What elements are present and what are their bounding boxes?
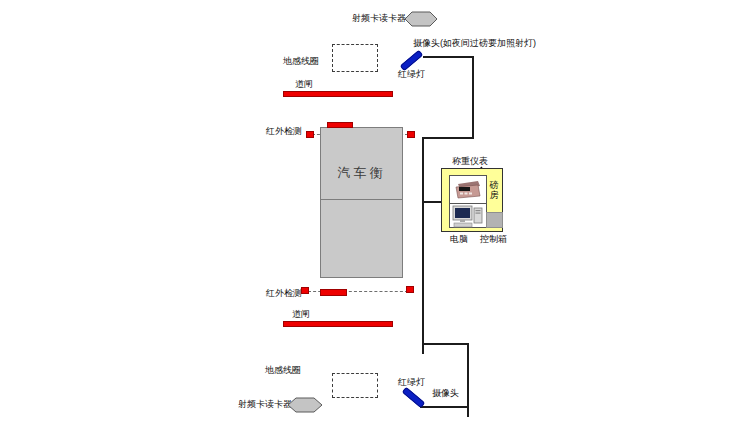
rfid-reader-bottom-label: 射频卡读卡器 (238, 399, 292, 409)
barrier-bottom-label: 道闸 (292, 309, 310, 319)
infrared-top-sensor-right (407, 131, 415, 138)
ground-coil-top-area (332, 44, 378, 72)
infrared-bottom-sensor-right (406, 286, 414, 293)
weigh-house-inner-divider (450, 203, 486, 204)
infrared-bottom-label: 红外检测 (266, 288, 302, 298)
computer-label: 电脑 (450, 234, 468, 244)
barrier-bottom-bar (283, 321, 393, 327)
weigh-house-inner-room (449, 175, 487, 228)
traffic-light-bottom-label: 红绿灯 (398, 377, 425, 387)
camera-bottom-label: 摄像头 (432, 388, 459, 398)
weigh-house-box: 磅 房 (441, 168, 503, 232)
ground-coil-bottom-label: 地感线圈 (265, 365, 301, 375)
infrared-top-sensor-left (306, 131, 314, 138)
rfid-reader-bottom-icon (287, 397, 323, 413)
ground-coil-bottom-area (332, 373, 378, 398)
infrared-bottom-sensor-left (301, 287, 309, 294)
cable-mid-horizontal (422, 137, 474, 139)
weigh-house-label: 磅 房 (488, 180, 500, 200)
ground-coil-top-label: 地感线圈 (283, 56, 319, 66)
cable-main-vertical (422, 137, 424, 354)
weigh-house-label-char2: 房 (488, 190, 500, 200)
infrared-top-bar (327, 122, 353, 128)
barrier-top-label: 道闸 (295, 79, 313, 89)
weighing-indicator-image (454, 179, 482, 200)
control-box-image (486, 212, 503, 228)
control-box-label: 控制箱 (480, 234, 507, 244)
cable-right-vertical-upper (472, 56, 474, 139)
infrared-bottom-bar (320, 289, 347, 296)
truck-scale-label: 汽车衡 (321, 164, 402, 182)
weigh-house-label-char1: 磅 (488, 180, 500, 190)
truck-scale-divider (320, 199, 403, 200)
rfid-reader-top-label: 射频卡读卡器 (352, 13, 406, 23)
computer-image (452, 205, 484, 228)
traffic-light-bottom-icon (402, 387, 426, 408)
rfid-reader-top-icon (404, 11, 438, 27)
infrared-top-label: 红外检测 (266, 126, 302, 136)
truck-scale-system-diagram: 射频卡读卡器 摄像头(如夜间过磅要加照射灯) 地感线圈 红绿灯 道闸 红外检测 … (0, 0, 746, 428)
cable-camera-bottom-horizontal (420, 406, 467, 408)
cable-bottom-vertical (467, 343, 469, 417)
barrier-top-bar (283, 91, 393, 97)
traffic-light-top-icon (400, 50, 424, 71)
camera-top-label: 摄像头(如夜间过磅要加照射灯) (413, 38, 536, 48)
traffic-light-top-label: 红绿灯 (398, 69, 425, 79)
cable-bottom-branch-horizontal (424, 343, 468, 345)
truck-scale: 汽车衡 (320, 127, 403, 278)
cable-camera-top-horizontal (423, 56, 473, 58)
